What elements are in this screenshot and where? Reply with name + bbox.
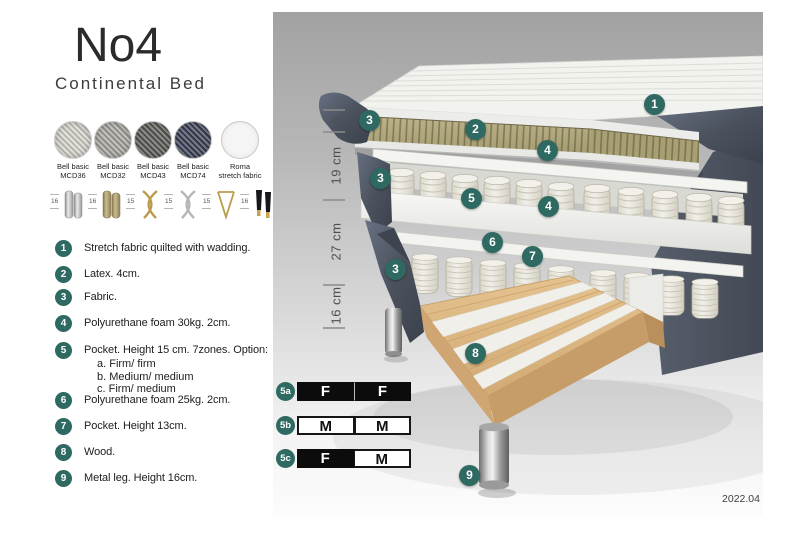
leg-option-cross-silver: 15 — [164, 186, 200, 224]
feature-text: Wood. — [84, 446, 115, 458]
fabric-swatch-circle — [134, 121, 172, 159]
feature-number-badge: 6 — [55, 392, 72, 409]
version-stamp: 2022.04 — [700, 493, 760, 505]
feature-item-5: 5 Pocket. Height 15 cm. 7zones. Option: … — [55, 342, 270, 394]
callout-8: 8 — [465, 343, 486, 364]
page-title: No4 — [74, 18, 162, 73]
leg-height: 16 — [240, 194, 249, 209]
feature-number-badge: 1 — [55, 240, 72, 257]
feature-text: Metal leg. Height 16cm. — [84, 472, 197, 484]
feature-number-badge: 8 — [55, 444, 72, 461]
feature-text: Latex. 4cm. — [84, 268, 140, 280]
fabric-swatch: Bell basicMCD32 — [92, 121, 134, 180]
bed-cutaway-illustration — [273, 12, 763, 517]
feature-text: Pocket. Height 15 cm. 7zones. Option: — [84, 344, 268, 356]
firmness-cell: F — [297, 382, 354, 401]
callout-5: 5 — [461, 188, 482, 209]
feature-text: Pocket. Height 13cm. — [84, 420, 187, 432]
leg-height: 16 — [50, 194, 59, 209]
feature-number-badge: 2 — [55, 266, 72, 283]
product-sheet: No4 Continental Bed Bell basicMCD36 Bell… — [0, 0, 800, 533]
hairpin-gold-leg-icon — [214, 188, 238, 220]
fabric-swatch-circle — [221, 121, 259, 159]
info-panel: No4 Continental Bed Bell basicMCD36 Bell… — [0, 0, 273, 533]
callout-3-mid: 3 — [370, 168, 391, 189]
fabric-swatch: Bell basicMCD74 — [172, 121, 214, 180]
fabric-swatch-circle — [54, 121, 92, 159]
leg-height: 15 — [126, 194, 135, 209]
firmness-cells: M M — [297, 416, 411, 435]
firmness-cell: M — [355, 416, 412, 435]
fabric-swatch: Bell basicMCD36 — [52, 121, 94, 180]
firmness-badge: 5b — [276, 416, 295, 435]
feature-text: Polyurethane foam 30kg. 2cm. — [84, 317, 230, 329]
dimension-label-19cm: 19 cm — [329, 131, 344, 201]
leg-option-tapered-black: 16 — [240, 186, 276, 224]
fabric-swatch-circle — [94, 121, 132, 159]
fabric-swatch-label: Romastretch fabric — [212, 163, 268, 180]
fabric-swatch: Romastretch fabric — [212, 121, 268, 180]
cross-gold-leg-icon — [138, 188, 162, 220]
callout-3-bottom: 3 — [385, 259, 406, 280]
cross-silver-leg-icon — [176, 188, 200, 220]
cylinder-brass-leg-icon — [100, 188, 124, 220]
firmness-badge: 5c — [276, 449, 295, 468]
leg-height: 15 — [164, 194, 173, 209]
feature-options: a. Firm/ firm b. Medium/ medium c. Firm/… — [97, 358, 194, 396]
leg-option-cross-gold: 15 — [126, 186, 162, 224]
fabric-swatch-label: Bell basicMCD43 — [132, 163, 174, 180]
bed-cutaway-panel: 6 19 cm 27 cm 16 cm 1 3 2 4 3 5 4 6 7 3 … — [273, 12, 763, 517]
dimension-label-16cm: 16 cm — [329, 271, 344, 341]
fabric-swatch-label: Bell basicMCD36 — [52, 163, 94, 180]
feature-number-badge: 9 — [55, 470, 72, 487]
feature-text: Stretch fabric quilted with wadding. — [84, 242, 250, 254]
firmness-cell: F — [297, 449, 354, 468]
callout-7: 7 — [522, 246, 543, 267]
feature-text: Polyurethane foam 25kg. 2cm. — [84, 394, 230, 406]
firmness-cell: M — [297, 416, 355, 435]
callout-3-top: 3 — [359, 110, 380, 131]
callout-2: 2 — [465, 119, 486, 140]
feature-number-badge: 7 — [55, 418, 72, 435]
fabric-swatch-circle — [174, 121, 212, 159]
cylinder-chrome-leg-icon — [62, 188, 86, 220]
firmness-cell: M — [354, 449, 412, 468]
page-subtitle: Continental Bed — [55, 74, 206, 94]
fabric-swatch: Bell basicMCD43 — [132, 121, 174, 180]
callout-9: 9 — [459, 465, 480, 486]
leg-height: 16 — [88, 194, 97, 209]
feature-text: Fabric. — [84, 291, 117, 303]
callout-6: 6 — [482, 232, 503, 253]
feature-number-badge: 3 — [55, 289, 72, 306]
feature-number-badge: 4 — [55, 315, 72, 332]
fabric-swatch-label: Bell basicMCD74 — [172, 163, 214, 180]
firmness-badge: 5a — [276, 382, 295, 401]
fabric-swatch-label: Bell basicMCD32 — [92, 163, 134, 180]
firmness-cells: F F — [297, 382, 411, 401]
firmness-cells: F M — [297, 449, 411, 468]
feature-number-badge: 5 — [55, 342, 72, 359]
leg-option-hairpin-gold: 15 — [202, 186, 238, 224]
leg-option-cylinder-chrome: 16 — [50, 186, 86, 224]
callout-1: 1 — [644, 94, 665, 115]
dimension-label-27cm: 27 cm — [329, 207, 344, 277]
leg-option-cylinder-brass: 16 — [88, 186, 124, 224]
callout-4-lower: 4 — [538, 196, 559, 217]
leg-height: 15 — [202, 194, 211, 209]
firmness-cell: F — [354, 382, 411, 401]
callout-4-upper: 4 — [537, 140, 558, 161]
